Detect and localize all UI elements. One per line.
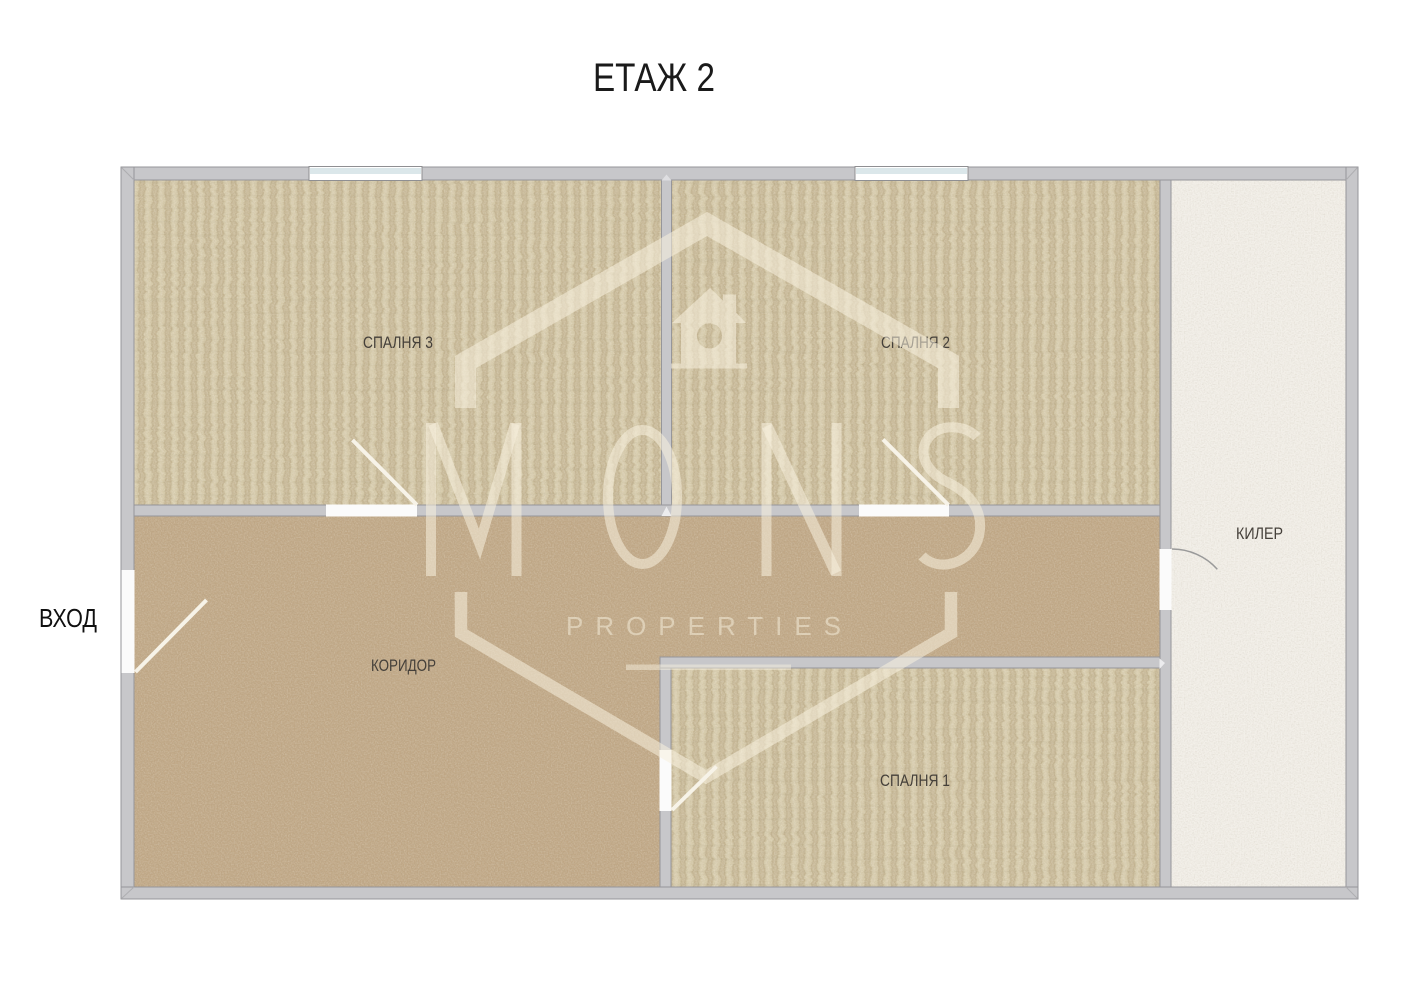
svg-text:СПАЛНЯ 1: СПАЛНЯ 1 bbox=[880, 772, 950, 790]
svg-text:ЕТАЖ 2: ЕТАЖ 2 bbox=[593, 56, 715, 100]
svg-text:КИЛЕР: КИЛЕР bbox=[1236, 525, 1283, 543]
svg-text:СПАЛНЯ 3: СПАЛНЯ 3 bbox=[363, 334, 433, 352]
svg-text:ВХОД: ВХОД bbox=[39, 603, 97, 633]
svg-text:КОРИДОР: КОРИДОР bbox=[371, 657, 436, 675]
svg-text:PROPERTIES: PROPERTIES bbox=[566, 611, 853, 641]
